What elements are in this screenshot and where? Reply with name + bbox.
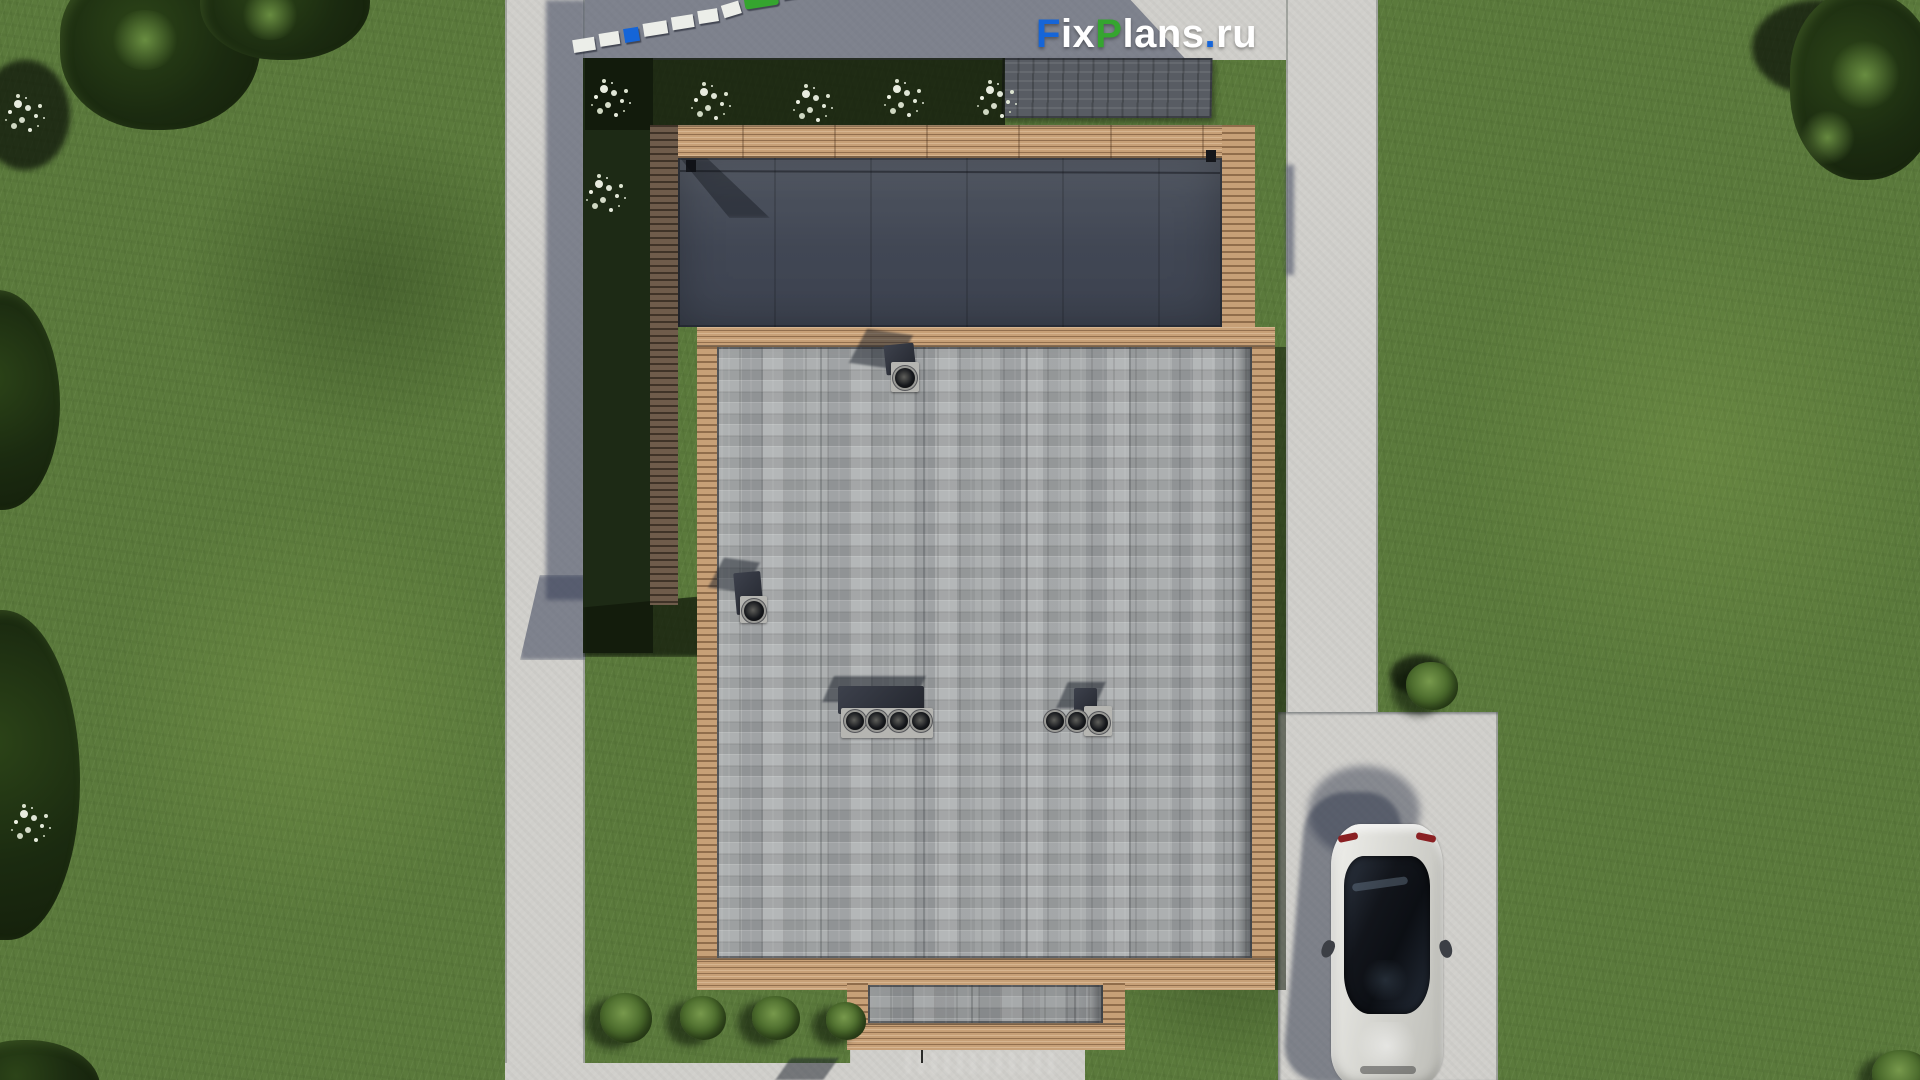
logo-block-white xyxy=(599,31,621,47)
right-walkway-shadow-sliver xyxy=(1286,165,1294,275)
vent-pipe xyxy=(744,601,764,621)
terrace-trim-north xyxy=(650,125,1255,158)
vent-pipe xyxy=(846,712,864,730)
flower-bush xyxy=(986,86,994,94)
lawn-shade-patch xyxy=(180,120,560,440)
roof-trim-east xyxy=(1252,347,1275,990)
logo-block-white xyxy=(572,37,596,53)
roof-trim-west xyxy=(697,347,717,990)
logo-block-white xyxy=(721,1,742,19)
green-bush xyxy=(1406,662,1458,710)
vent-pipe xyxy=(890,712,908,730)
logo-part-p: P xyxy=(1095,12,1122,56)
logo-block-green xyxy=(743,0,779,10)
lawn-highlight xyxy=(1450,200,1920,700)
vent-pipe xyxy=(1046,712,1064,730)
car-glass-reflection xyxy=(1360,960,1410,1000)
flower-bush xyxy=(14,100,22,108)
right-walkway xyxy=(1286,0,1378,715)
green-bush xyxy=(680,996,726,1040)
logo-block-white xyxy=(697,8,719,24)
pergola-post xyxy=(1206,150,1216,162)
house-shadow-lawn xyxy=(583,58,653,653)
stone-mat xyxy=(1001,58,1212,118)
logo-part-lans: lans xyxy=(1122,12,1204,56)
fixplans-logo: FixPlans.ru xyxy=(1036,12,1257,57)
terrace-trim-east xyxy=(1222,125,1255,347)
logo-block-blue xyxy=(623,27,640,43)
flower-bush xyxy=(595,180,603,188)
vent-pipe xyxy=(912,712,930,730)
flower-bush xyxy=(20,810,28,818)
east-roof-shadow-strip xyxy=(1275,347,1286,990)
lawn-highlight xyxy=(100,500,520,920)
car-grille xyxy=(1360,1066,1416,1074)
logo-part-ix: ix xyxy=(1061,12,1095,56)
flower-bush xyxy=(893,85,901,93)
flower-bush xyxy=(600,85,608,93)
porch-shingles xyxy=(868,985,1103,1023)
tree-highlight xyxy=(1800,110,1855,165)
flower-bush xyxy=(802,90,810,98)
site-plan-render: FixPlans.ru xyxy=(0,0,1920,1080)
green-bush xyxy=(752,996,800,1040)
faint-watermark xyxy=(905,1052,1055,1074)
car-hood-highlight xyxy=(1352,1022,1422,1070)
logo-part-f: F xyxy=(1036,12,1061,56)
vent-pipe xyxy=(1068,712,1086,730)
vent-pipe xyxy=(868,712,886,730)
flower-bush xyxy=(700,88,708,96)
logo-block-white xyxy=(643,20,669,37)
logo-part-ru: ru xyxy=(1216,12,1257,56)
green-bush xyxy=(826,1002,866,1040)
vent-pipe xyxy=(895,368,915,388)
roof-trim-north xyxy=(697,327,1275,347)
logo-block-white xyxy=(671,14,695,30)
tree-highlight xyxy=(1830,40,1900,110)
logo-part-dot: . xyxy=(1205,12,1217,56)
vent-pipe xyxy=(1090,714,1108,732)
tree-highlight xyxy=(110,10,180,70)
left-walkway-shadow xyxy=(546,0,586,600)
terrace-trim-west xyxy=(650,125,678,605)
roof-shingles xyxy=(717,347,1252,958)
green-bush xyxy=(600,993,652,1043)
porch-trim-south xyxy=(847,1023,1125,1050)
terrace-deck xyxy=(678,158,1222,327)
north-shadow-lawn xyxy=(585,58,1005,130)
